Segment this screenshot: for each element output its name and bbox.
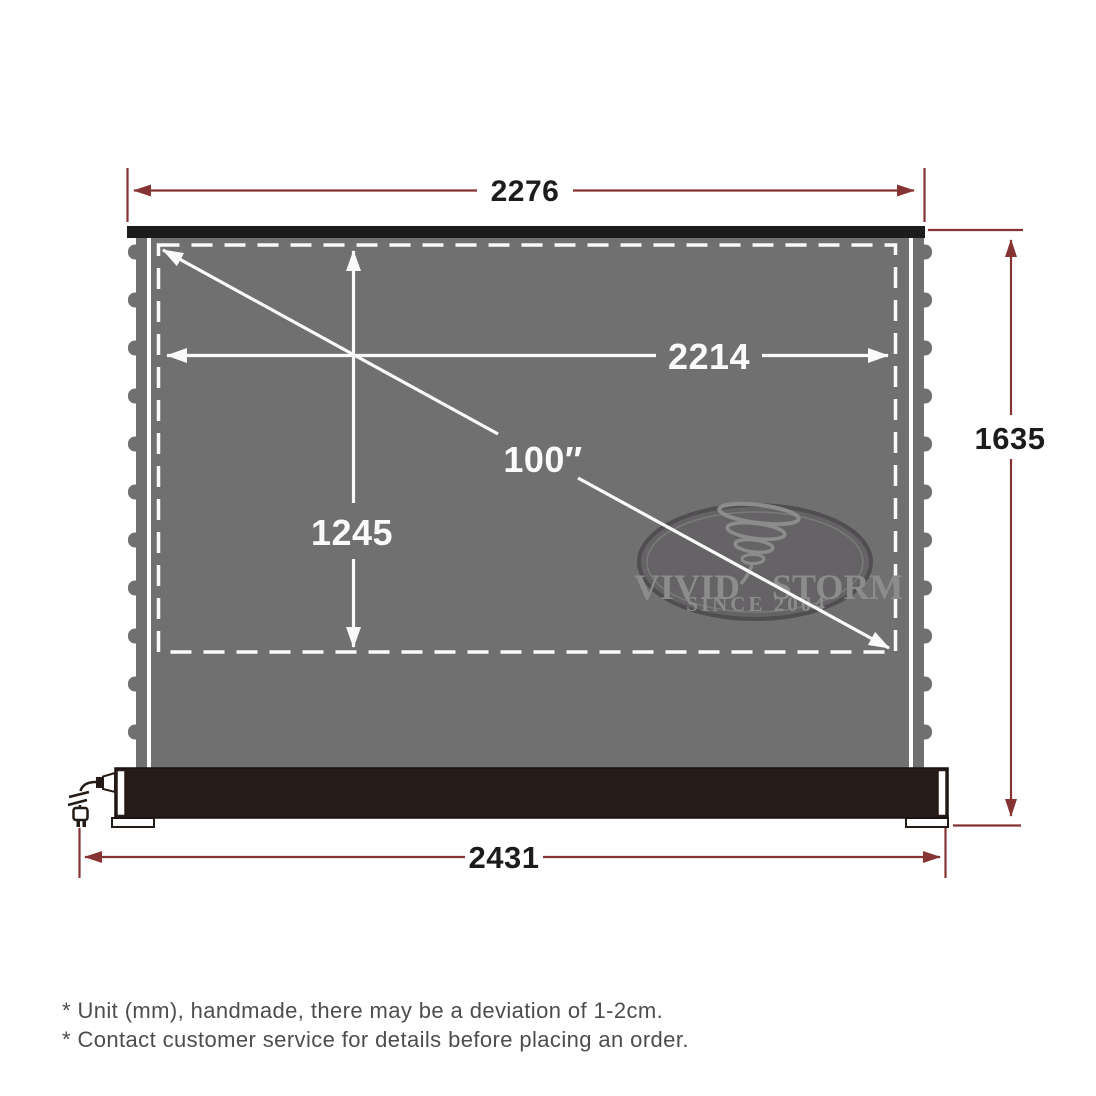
base-width-label: 2431 [469,840,540,875]
cord-curve [81,782,97,791]
tension-tab [128,629,146,644]
tension-tab [128,245,146,260]
power-plug [68,773,115,827]
tension-tab [914,725,932,740]
screen-body [127,226,932,768]
viewing-height-label: 1245 [311,512,393,553]
diagonal-size-label: 100″ [503,439,582,480]
tension-tab [128,389,146,404]
tension-tab [914,389,932,404]
tension-tab [128,437,146,452]
cord-connector [103,773,115,792]
tension-tab [128,293,146,308]
plug-prong-2 [83,820,87,827]
plug-body [74,808,88,820]
cassette-width-label: 2276 [491,175,560,208]
tension-tab [128,341,146,356]
tension-tab [914,629,932,644]
tension-tab [914,437,932,452]
tension-tab [128,677,146,692]
viewing-width-label: 2214 [668,336,750,377]
left-foot [112,818,154,827]
cord-ferrule [96,777,103,788]
right-foot [906,818,948,827]
footnote-contact-service: * Contact customer service for details b… [62,1027,689,1053]
cord-break-mark [68,792,89,805]
tension-tab [128,485,146,500]
tension-tab [914,245,932,260]
overall-height-label: 1635 [975,421,1046,456]
tension-tab [128,533,146,548]
tension-tab [128,581,146,596]
tension-tab [128,725,146,740]
floor-housing [112,768,948,827]
plug-prong-1 [77,820,81,827]
screen-surface [151,238,909,768]
housing-cassette [115,768,948,818]
top-slat-bar [127,226,925,238]
diagram-svg: VIVID STORM SINCE 2004 2214 1245 100″ [0,0,1096,1096]
tension-tab [914,293,932,308]
footnote-unit-deviation: * Unit (mm), handmade, there may be a de… [62,998,663,1024]
housing-right-endcap [938,771,946,816]
screen-dimension-diagram: VIVID STORM SINCE 2004 2214 1245 100″ [0,0,1096,1096]
tension-tab [914,533,932,548]
tension-tab [914,485,932,500]
tension-tab [914,677,932,692]
housing-left-endcap [117,771,125,816]
tension-tab [914,341,932,356]
tension-tab [914,581,932,596]
